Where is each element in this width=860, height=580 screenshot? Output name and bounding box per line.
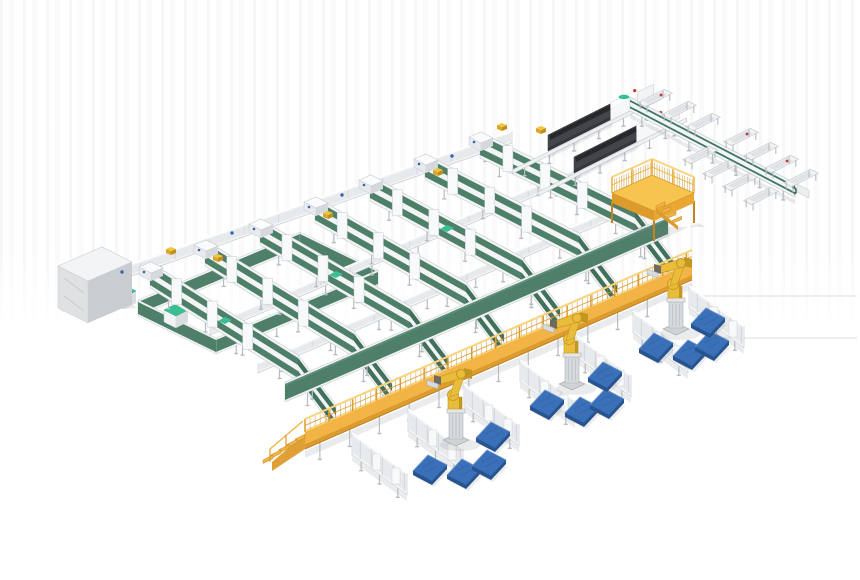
- electrical-cabinet: [58, 247, 137, 323]
- walkway-stairs: [263, 421, 305, 471]
- branch-table: [744, 187, 779, 210]
- factory-isometric-render: [0, 0, 860, 580]
- discharge-spur-conveyor: [352, 433, 407, 501]
- branch-table: [724, 128, 759, 151]
- scene-canvas: [0, 0, 860, 580]
- branch-table: [723, 173, 758, 196]
